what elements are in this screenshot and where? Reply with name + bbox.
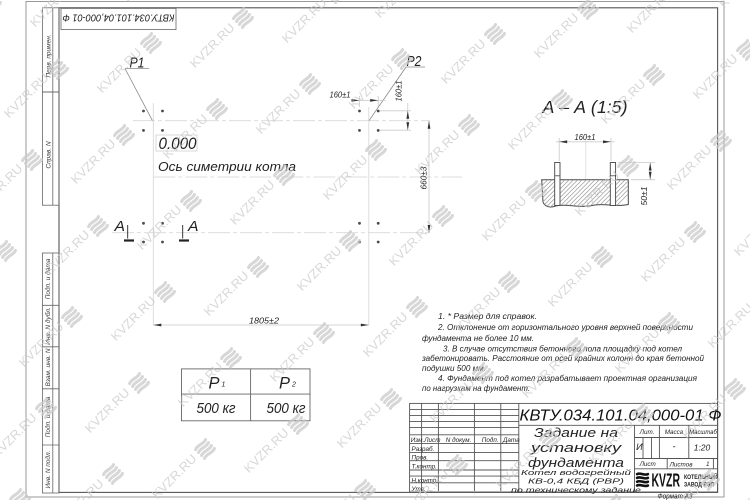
svg-text:Лист: Лист xyxy=(639,461,656,468)
svg-text:А: А xyxy=(187,219,199,235)
svg-text:1:20: 1:20 xyxy=(694,443,711,453)
svg-text:-: - xyxy=(673,442,676,452)
svg-text:Дата: Дата xyxy=(502,437,520,444)
svg-text:1: 1 xyxy=(222,382,226,389)
svg-text:N докум.: N докум. xyxy=(446,436,471,444)
svg-text:160±1: 160±1 xyxy=(330,90,351,99)
svg-text:Инв. N подл.: Инв. N подл. xyxy=(44,450,52,488)
svg-text:1: 1 xyxy=(706,461,710,468)
svg-text:Т.контр.: Т.контр. xyxy=(412,463,437,470)
svg-text:Изм.Лист: Изм.Лист xyxy=(411,437,441,444)
svg-text:А: А xyxy=(113,219,125,235)
svg-text:KVZR: KVZR xyxy=(652,470,681,490)
svg-text:Справ. N: Справ. N xyxy=(46,141,53,169)
svg-text:Листов: Листов xyxy=(669,461,694,468)
svg-text:Разраб.: Разраб. xyxy=(412,445,435,453)
svg-text:КВТУ.034.101.04,000-01 Ф: КВТУ.034.101.04,000-01 Ф xyxy=(63,12,175,24)
svg-text:Лит.: Лит. xyxy=(639,429,655,436)
svg-text:1805±2: 1805±2 xyxy=(249,317,280,326)
svg-text:50±1: 50±1 xyxy=(639,186,649,205)
svg-text:1. * Размер для справок.: 1. * Размер для справок. xyxy=(438,312,537,321)
svg-text:500 кг: 500 кг xyxy=(197,401,236,417)
svg-text:Взам. инв. N: Взам. инв. N xyxy=(45,348,52,386)
svg-text:по техническому задание: по техническому задание xyxy=(511,485,641,494)
svg-text:160±1: 160±1 xyxy=(395,81,404,102)
svg-text:160±1: 160±1 xyxy=(575,133,596,142)
svg-text:И: И xyxy=(636,442,643,452)
svg-text:фундамента не более 10 мм.: фундамента не более 10 мм. xyxy=(422,334,534,343)
svg-text:2: 2 xyxy=(291,382,296,389)
svg-text:КВ-0,4 КБД (РВР): КВ-0,4 КБД (РВР) xyxy=(528,476,625,485)
svg-text:Подп.: Подп. xyxy=(482,436,499,444)
svg-text:Пров.: Пров. xyxy=(412,454,429,461)
